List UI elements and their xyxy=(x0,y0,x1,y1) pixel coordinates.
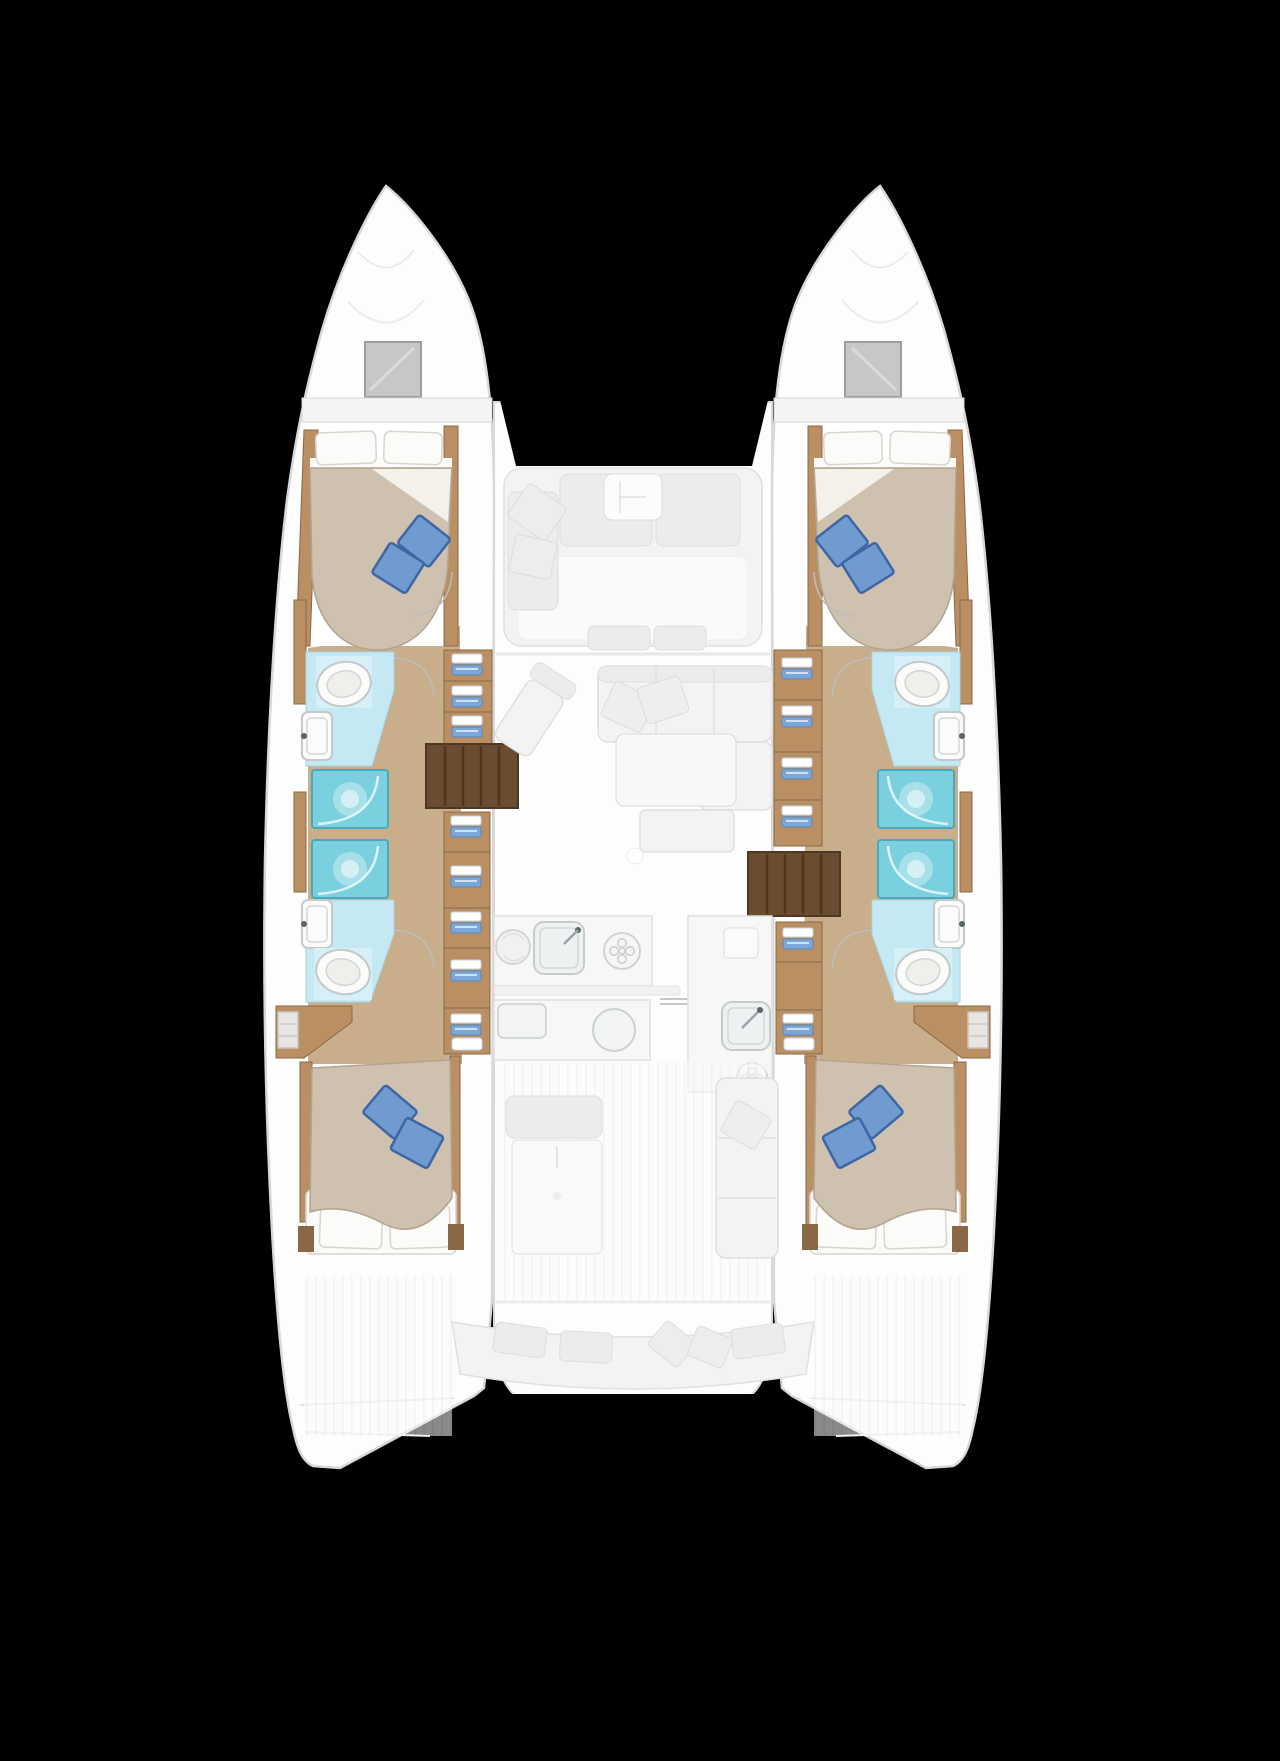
island-sink xyxy=(498,1004,546,1038)
step-cushion xyxy=(654,626,706,650)
counter-module xyxy=(724,928,758,958)
deck-plan-svg xyxy=(0,0,1280,1761)
sofa-backrest xyxy=(598,666,772,682)
seat-backrest xyxy=(506,1096,602,1138)
seat-cushion xyxy=(656,474,740,546)
stairs-icon xyxy=(748,852,840,916)
galley-sink-icon xyxy=(722,1002,770,1050)
round-basin xyxy=(593,1009,635,1051)
bench-cushion xyxy=(559,1331,612,1364)
step-cushion xyxy=(588,626,650,650)
floor-light xyxy=(627,848,643,864)
linen-stack xyxy=(452,1038,482,1050)
throw-pillow xyxy=(509,534,558,580)
forward-cockpit xyxy=(504,468,762,650)
foredeck-gap xyxy=(500,400,768,466)
catamaran-floor-plan xyxy=(0,0,1280,1761)
stairs-icon xyxy=(426,744,518,808)
linen-stack xyxy=(784,1038,814,1050)
transom-gap xyxy=(468,1394,798,1476)
salon-bench xyxy=(640,810,734,852)
galley-sink-icon xyxy=(534,922,584,974)
table-fitting xyxy=(553,1192,561,1200)
counter-bar xyxy=(494,986,680,995)
dish-rack xyxy=(496,930,530,964)
salon-table xyxy=(616,734,736,806)
